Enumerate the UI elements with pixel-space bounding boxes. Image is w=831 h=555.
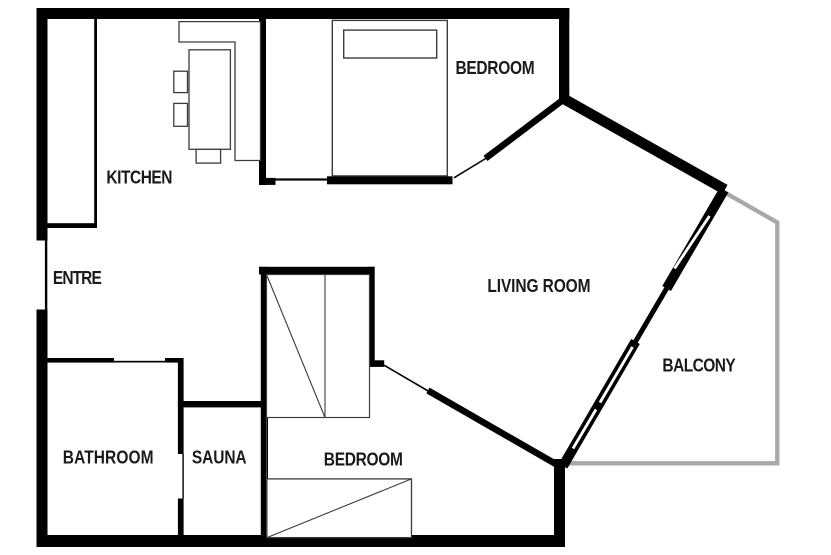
svg-text:BEDROOM: BEDROOM [324, 449, 403, 470]
svg-text:LIVING ROOM: LIVING ROOM [487, 276, 590, 297]
svg-text:SAUNA: SAUNA [192, 447, 247, 468]
svg-text:KITCHEN: KITCHEN [106, 167, 172, 188]
svg-text:ENTRE: ENTRE [53, 268, 102, 289]
svg-text:BEDROOM: BEDROOM [456, 58, 535, 79]
svg-text:BATHROOM: BATHROOM [63, 447, 154, 468]
svg-text:BALCONY: BALCONY [662, 355, 736, 376]
